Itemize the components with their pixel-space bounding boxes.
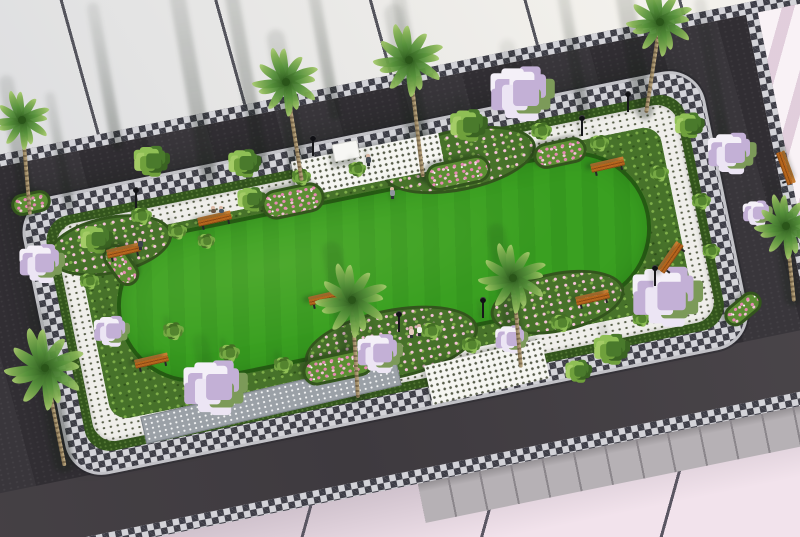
- blossom-tree: [520, 92, 522, 94]
- bench-leg: [681, 248, 685, 252]
- tree: [577, 370, 579, 372]
- palm-crown-center: [782, 222, 790, 230]
- palm-crown-center: [348, 296, 356, 304]
- tree: [95, 238, 97, 240]
- shrub: [205, 240, 207, 242]
- bench-leg: [620, 166, 623, 170]
- shrub: [658, 172, 660, 174]
- lamp-post: [627, 96, 629, 112]
- flower-bed: [720, 287, 766, 331]
- shrub: [700, 200, 702, 202]
- blossom-tree: [665, 295, 667, 297]
- bench-leg: [136, 252, 139, 256]
- shrub: [176, 230, 178, 232]
- lamp-head: [310, 135, 316, 141]
- lamp-head: [579, 115, 585, 121]
- cast-shadow: [231, 135, 244, 168]
- shrub: [356, 168, 358, 170]
- shrub: [470, 344, 472, 346]
- tree: [250, 198, 252, 200]
- lamp-head: [133, 187, 139, 193]
- cast-shadow: [589, 127, 598, 145]
- cast-shadow: [531, 114, 540, 134]
- bench-leg: [605, 299, 608, 303]
- cast-shadow: [676, 100, 688, 130]
- flower-bed: [259, 180, 328, 223]
- person-legs: [410, 335, 413, 338]
- cast-shadow: [239, 175, 250, 203]
- cast-shadow: [551, 306, 560, 326]
- bench: [575, 289, 611, 309]
- blossom-tree: [510, 338, 512, 340]
- scene-objects: [0, 0, 800, 537]
- path-patch: [424, 339, 550, 405]
- cast-shadow: [273, 349, 282, 367]
- shrub: [540, 130, 542, 132]
- cast-shadow: [83, 211, 96, 244]
- bench-leg: [580, 305, 583, 309]
- shrub: [640, 318, 642, 320]
- palm-crown-center: [509, 274, 517, 282]
- tree: [467, 124, 469, 126]
- cast-shadow: [691, 185, 700, 203]
- palm-crown-center: [282, 78, 290, 86]
- cast-shadow: [167, 215, 176, 233]
- cast-shadow: [219, 336, 228, 356]
- blossom-tree: [730, 152, 732, 154]
- shrub: [228, 352, 230, 354]
- shrub: [598, 142, 600, 144]
- shrub: [282, 364, 284, 366]
- lamp-post: [581, 120, 583, 136]
- lamp-post: [135, 192, 137, 208]
- lamp-post: [482, 302, 484, 318]
- lamp-post: [312, 140, 314, 156]
- blossom-tree: [756, 212, 758, 214]
- person-legs: [367, 163, 370, 166]
- shrub: [560, 322, 562, 324]
- cast-shadow: [163, 314, 172, 334]
- person-body: [219, 209, 224, 213]
- cast-shadow: [631, 304, 640, 321]
- lamp-post: [654, 270, 656, 286]
- cast-shadow: [301, 0, 342, 121]
- blossom-tree: [213, 386, 215, 388]
- tree: [688, 124, 690, 126]
- bench: [590, 156, 626, 176]
- bench-leg: [313, 305, 316, 309]
- bench-leg: [595, 172, 598, 176]
- tree: [610, 348, 612, 350]
- lamp-head: [396, 311, 402, 317]
- person: [408, 326, 414, 338]
- flower-bed: [531, 135, 589, 172]
- bench-leg: [202, 226, 205, 230]
- lamp-head: [480, 297, 486, 303]
- person: [218, 206, 224, 214]
- bench-leg: [111, 258, 114, 262]
- person-legs: [418, 333, 421, 336]
- blossom-tree: [40, 262, 42, 264]
- tree: [243, 162, 245, 164]
- lamp-head: [625, 91, 631, 97]
- person-legs: [391, 196, 394, 199]
- cast-shadow: [79, 265, 88, 283]
- person: [389, 187, 395, 199]
- lamp-post: [398, 316, 400, 332]
- park-aerial-render: [0, 0, 800, 537]
- shrub: [140, 215, 142, 217]
- tree: [150, 160, 152, 162]
- bench-leg: [666, 270, 670, 274]
- person: [416, 324, 422, 336]
- shrub: [172, 330, 174, 332]
- person: [365, 154, 371, 166]
- cast-shadow: [553, 0, 591, 121]
- bench-leg: [139, 368, 142, 372]
- cast-shadow: [701, 236, 710, 253]
- bench-leg: [227, 220, 230, 224]
- person-legs: [139, 247, 142, 250]
- bench-leg: [164, 362, 167, 366]
- shrub: [88, 280, 90, 282]
- cast-shadow: [161, 0, 218, 183]
- person: [137, 238, 143, 250]
- person-body: [211, 209, 216, 213]
- person: [210, 206, 216, 214]
- cast-shadow: [744, 188, 756, 218]
- blossom-tree: [110, 330, 112, 332]
- cast-shadow: [461, 329, 470, 347]
- shrub: [430, 330, 432, 332]
- lamp-head: [652, 265, 658, 271]
- palm-crown-center: [405, 56, 413, 64]
- blossom-tree: [378, 352, 380, 354]
- palm-crown-center: [18, 116, 26, 124]
- cast-shadow: [421, 314, 430, 334]
- palm-crown-center: [656, 18, 664, 26]
- cast-shadow: [566, 348, 577, 374]
- palm-crown-center: [41, 364, 49, 372]
- bench: [134, 352, 170, 372]
- cast-shadow: [86, 1, 124, 151]
- shrub: [710, 250, 712, 252]
- cast-shadow: [649, 157, 658, 175]
